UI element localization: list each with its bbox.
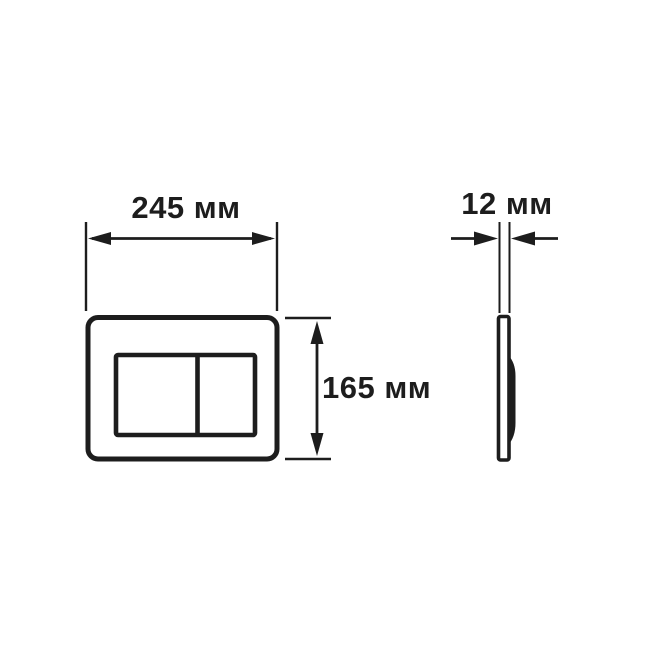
height-dimension-label: 165 мм (322, 372, 431, 403)
thickness-arrowhead-left (474, 232, 498, 246)
dimension-drawing (0, 0, 650, 650)
width-dimension-label: 245 мм (131, 192, 240, 223)
thickness-dimension-label: 12 мм (461, 188, 552, 219)
flush-buttons-frame (116, 355, 255, 435)
flush-plate-side-outline (499, 317, 510, 461)
width-arrowhead-left (88, 232, 111, 245)
thickness-arrowhead-right (511, 232, 535, 246)
height-arrowhead-bottom (311, 433, 324, 456)
height-arrowhead-top (311, 321, 324, 344)
width-arrowhead-right (252, 232, 275, 245)
technical-drawing-canvas: 245 мм 12 мм 165 мм (0, 0, 650, 650)
flush-plate-side-bulge (508, 355, 516, 445)
